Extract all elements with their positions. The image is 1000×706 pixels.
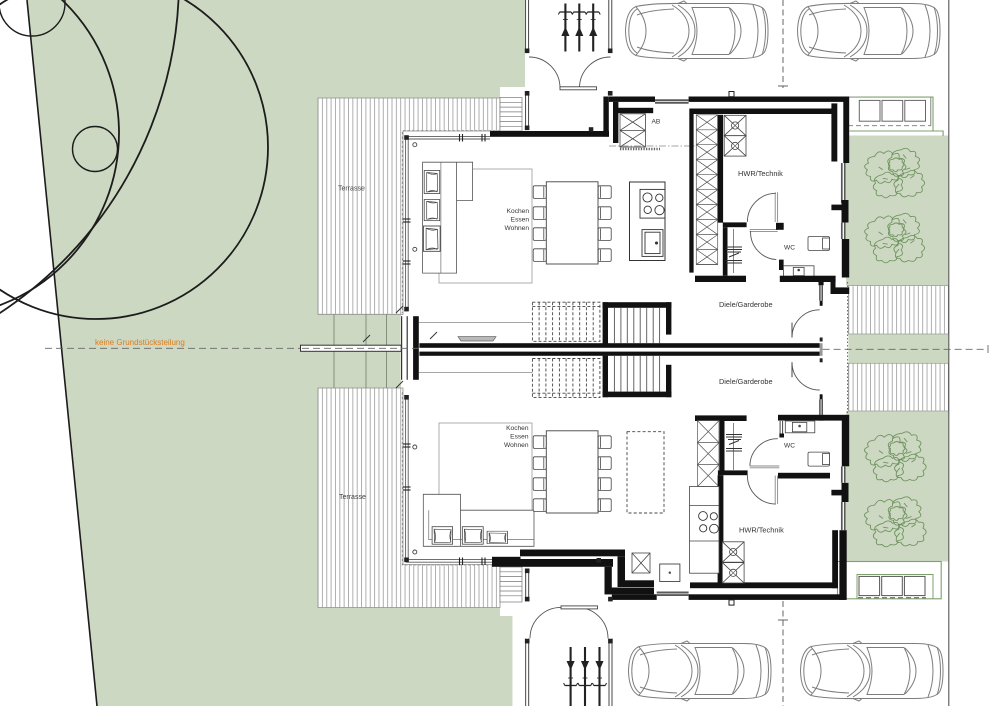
svg-text:Diele/Garderobe: Diele/Garderobe — [719, 377, 773, 386]
svg-text:Terrasse: Terrasse — [339, 494, 366, 501]
svg-text:HWR/Technik: HWR/Technik — [738, 169, 783, 178]
svg-text:Essen: Essen — [510, 434, 529, 441]
svg-text:HWR/Technik: HWR/Technik — [739, 526, 784, 535]
svg-text:keine Grundstücksteilung: keine Grundstücksteilung — [95, 338, 185, 347]
svg-text:Wohnen: Wohnen — [504, 442, 529, 449]
svg-text:Diele/Garderobe: Diele/Garderobe — [719, 300, 773, 309]
svg-text:Wohnen: Wohnen — [505, 225, 530, 232]
svg-text:AB: AB — [652, 119, 661, 126]
svg-text:Kochen: Kochen — [507, 208, 530, 215]
svg-text:Essen: Essen — [511, 217, 530, 224]
svg-text:Terrasse: Terrasse — [338, 186, 365, 193]
svg-text:WC: WC — [784, 443, 795, 450]
svg-text:WC: WC — [784, 245, 795, 252]
svg-text:Kochen: Kochen — [506, 425, 529, 432]
